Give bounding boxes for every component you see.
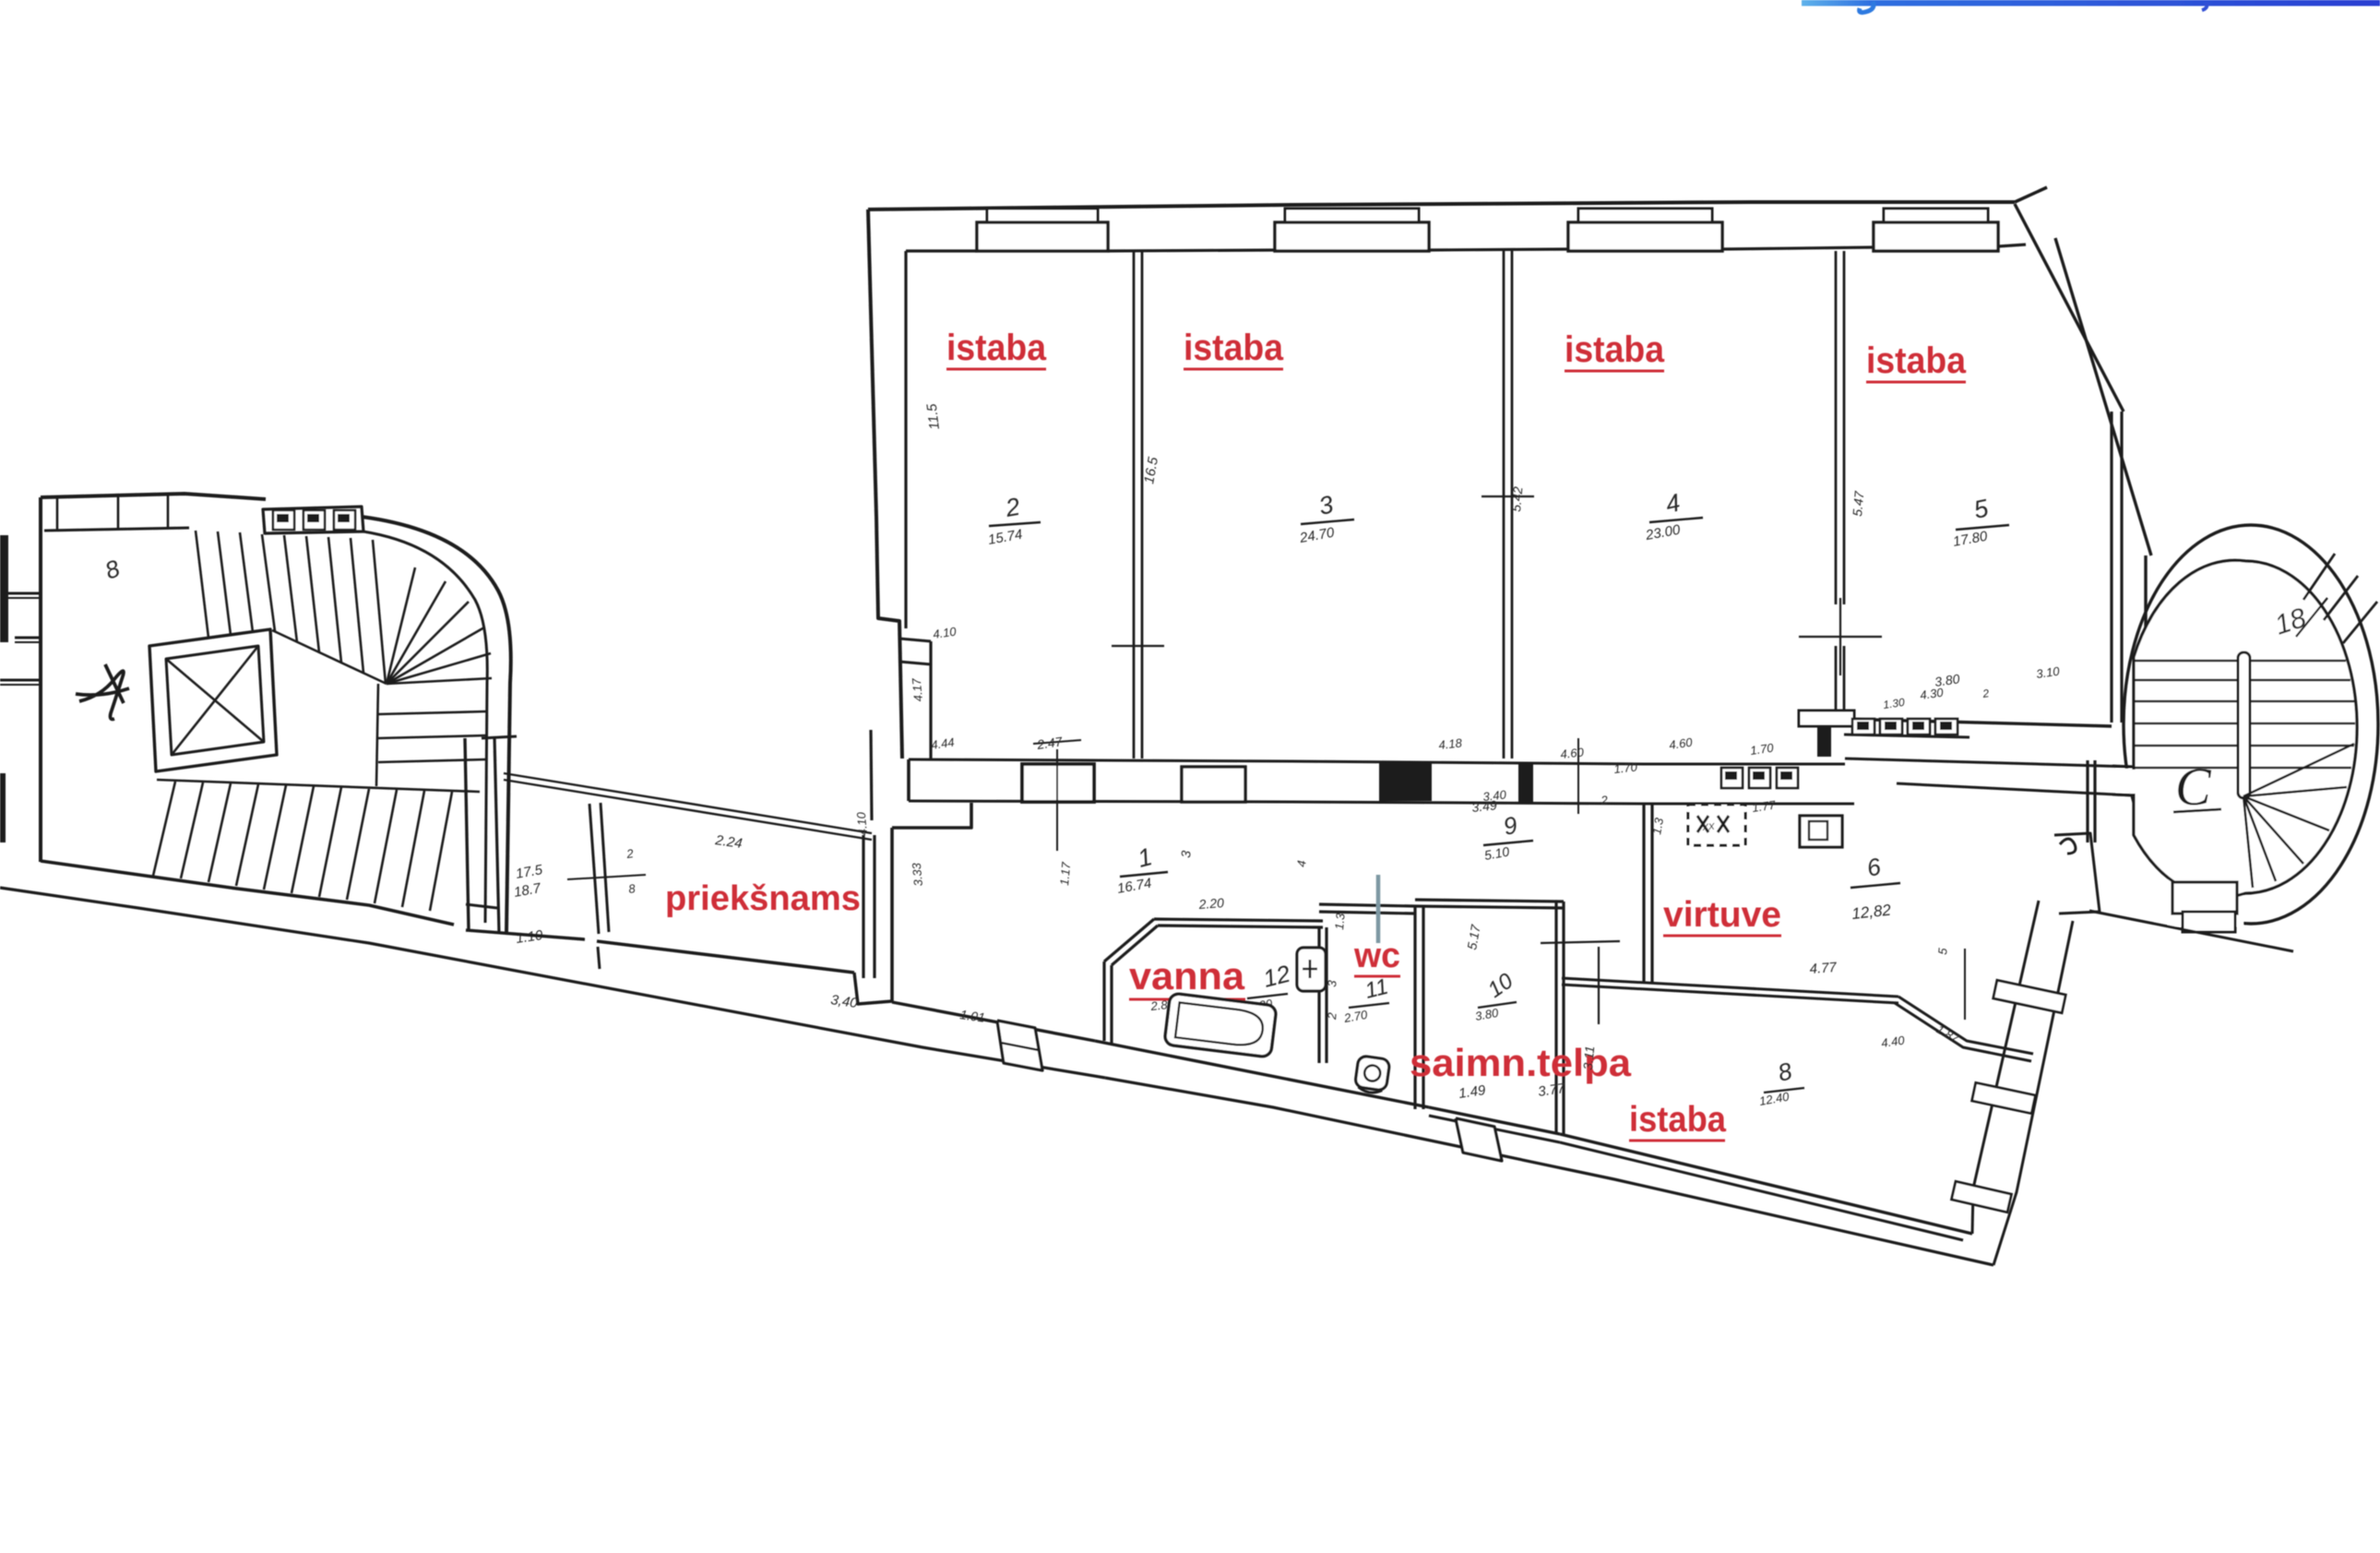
svg-text:4.17: 4.17 bbox=[910, 677, 925, 702]
svg-text:vanna: vanna bbox=[1129, 954, 1245, 998]
svg-text:xx: xx bbox=[1701, 818, 1716, 833]
svg-text:4.77: 4.77 bbox=[1809, 960, 1838, 977]
svg-text:3: 3 bbox=[1178, 850, 1194, 858]
svg-text:3.11: 3.11 bbox=[1580, 1045, 1597, 1071]
svg-text:istaba: istaba bbox=[1629, 1100, 1726, 1140]
svg-text:saimn.telpa: saimn.telpa bbox=[1410, 1041, 1632, 1084]
svg-text:5.42: 5.42 bbox=[1508, 486, 1525, 513]
svg-text:1.17: 1.17 bbox=[1057, 861, 1073, 886]
svg-text:C: C bbox=[2175, 757, 2212, 817]
svg-text:3.33: 3.33 bbox=[910, 862, 925, 887]
svg-text:virtuve: virtuve bbox=[1663, 895, 1781, 935]
svg-text:wc: wc bbox=[1353, 937, 1400, 975]
svg-text:4.18: 4.18 bbox=[1438, 735, 1463, 752]
svg-text:1.70: 1.70 bbox=[1613, 759, 1638, 776]
svg-text:istaba: istaba bbox=[946, 328, 1047, 368]
svg-text:2.20: 2.20 bbox=[1197, 895, 1225, 912]
svg-text:istaba: istaba bbox=[1184, 328, 1284, 368]
svg-text:1.3: 1.3 bbox=[1332, 912, 1348, 930]
svg-text:istaba: istaba bbox=[1866, 340, 1967, 381]
svg-text:4.60: 4.60 bbox=[1560, 745, 1585, 761]
svg-text:istaba: istaba bbox=[1565, 329, 1665, 370]
svg-text:priekšnams: priekšnams bbox=[665, 879, 861, 918]
svg-text:11.5: 11.5 bbox=[924, 402, 943, 431]
svg-text:4: 4 bbox=[1294, 860, 1309, 868]
svg-text:4.10: 4.10 bbox=[854, 811, 870, 836]
svg-text:3.40: 3.40 bbox=[1482, 787, 1507, 804]
svg-text:5.47: 5.47 bbox=[1850, 490, 1866, 518]
